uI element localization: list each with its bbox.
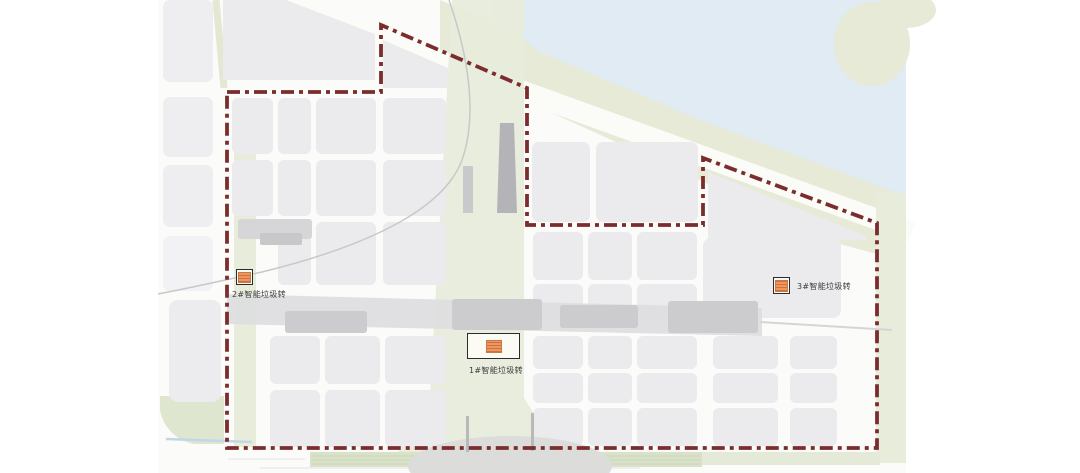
station-1-label: 1#智能垃圾转 [469,366,523,375]
pier [463,166,473,213]
station-1-symbol [486,340,502,353]
station-2-label: 2#智能垃圾转 [232,290,286,299]
south-green-strip [702,452,880,465]
station-3-marker [773,277,790,294]
station-building [260,233,302,245]
station-3-symbol [775,280,788,292]
notch-blocks [532,142,698,222]
site-plan-map: 2#智能垃圾转 1#智能垃圾转 3#智能垃圾转 [0,0,1080,473]
station-2-marker [236,269,253,285]
station-1-marker [467,333,520,359]
station-2-symbol [238,272,251,283]
left-outside-blocks [163,0,213,291]
station-3-label: 3#智能垃圾转 [797,282,851,291]
city-blocks-east [533,232,841,446]
map-graphics [0,0,1080,473]
greenway-east [876,193,906,463]
tower [497,123,517,213]
outside-block [169,300,221,402]
